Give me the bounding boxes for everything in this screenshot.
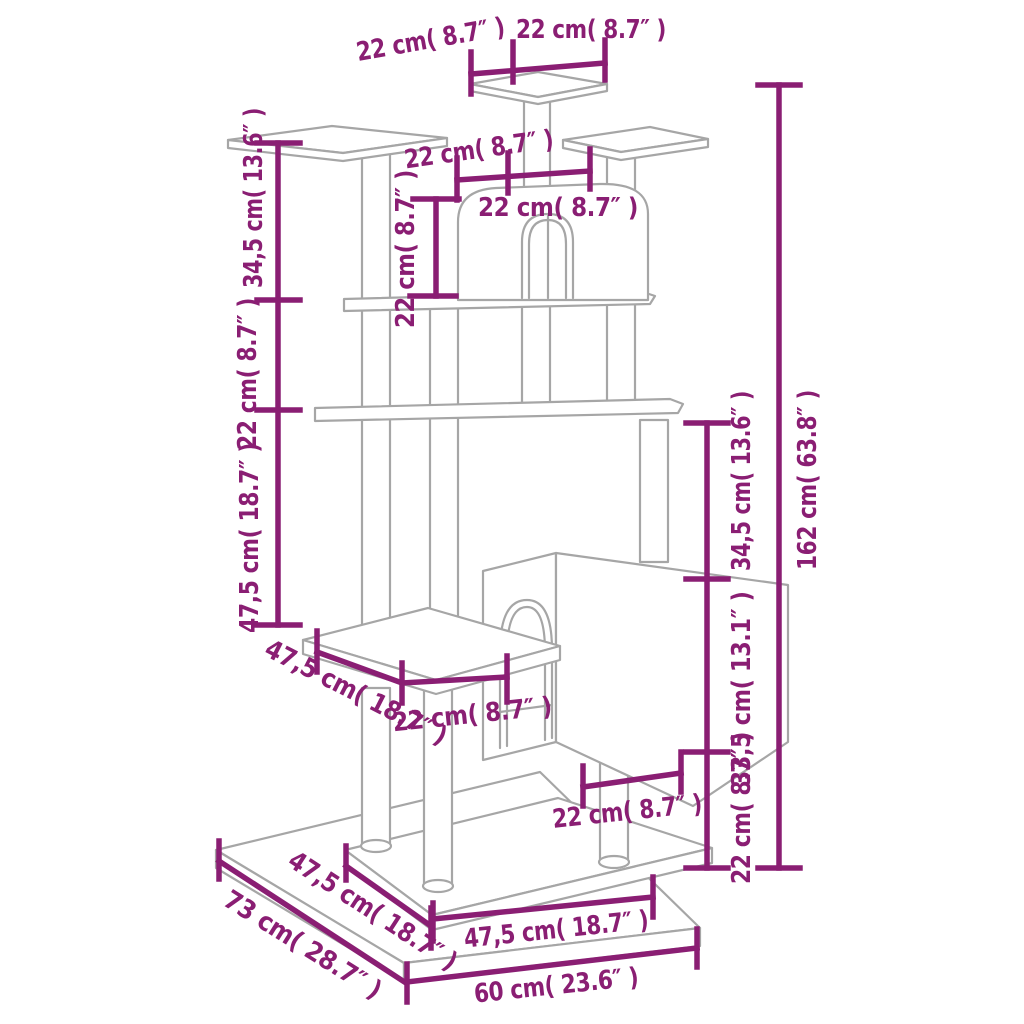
dim-label-right-height-bottom: 22 cm( 8.7″ ) — [727, 732, 757, 884]
dim-label-left-height-top: 34,5 cm( 13.6″ ) — [239, 108, 269, 288]
dim-label-top-width-right: 22 cm( 8.7″ ) — [516, 15, 666, 45]
scratching-post — [522, 303, 550, 407]
scratching-post — [640, 420, 668, 562]
dim-label-left-height-middle: 22 cm( 8.7″ ) — [233, 298, 263, 450]
cat-tree-dimension-diagram: 22 cm( 8.7″ ) 22 cm( 8.7″ ) 22 cm( 8.7″ … — [0, 0, 1024, 1024]
post-foot — [423, 880, 453, 892]
dim-label-right-height-top: 34,5 cm( 13.6″ ) — [727, 391, 757, 571]
dim-label-left-height-bottom: 47,5 cm( 18.7″ ) — [235, 443, 265, 633]
post-foot — [361, 840, 391, 852]
dim-label-top-width-left: 22 cm( 8.7″ ) — [354, 12, 507, 68]
dim-label-total-height: 162 cm( 63.8″ ) — [793, 390, 823, 570]
dim-label-upper-house-height: 22 cm( 8.7″ ) — [391, 170, 421, 328]
post-foot — [599, 856, 629, 868]
scratching-post — [362, 146, 390, 634]
dimension-diagram-canvas: 22 cm( 8.7″ ) 22 cm( 8.7″ ) 22 cm( 8.7″ … — [0, 0, 1024, 1024]
scratching-post — [430, 303, 458, 627]
dim-label-level2-width-right: 22 cm( 8.7″ ) — [478, 193, 638, 223]
